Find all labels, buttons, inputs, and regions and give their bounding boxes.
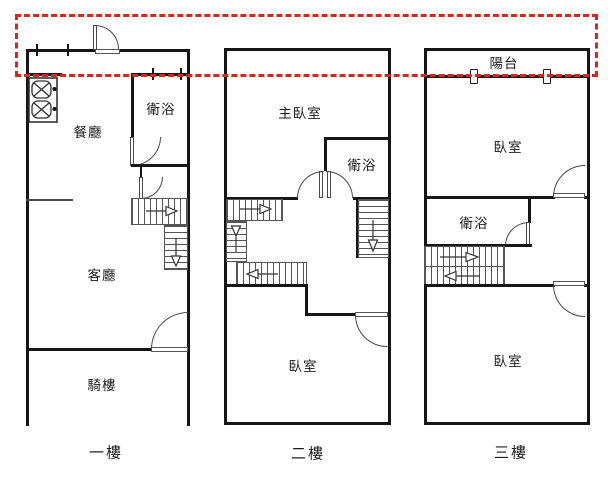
wall <box>424 196 555 199</box>
wall <box>424 422 590 425</box>
stairs-direction-arrow <box>229 224 243 254</box>
stairs-direction-arrow <box>442 269 486 283</box>
stairs-direction-arrow <box>238 202 274 216</box>
wall <box>587 48 590 425</box>
door-arc <box>553 285 585 317</box>
wall <box>140 166 142 177</box>
wall <box>324 137 327 171</box>
room-label-front-bedroom: 臥室 <box>494 136 523 156</box>
stairs-direction-arrow <box>366 218 380 254</box>
door-arc <box>326 171 353 198</box>
wall <box>305 284 308 316</box>
door-arc <box>151 312 188 349</box>
room-label-bath: 衛浴 <box>460 212 489 232</box>
stairs-direction-arrow <box>144 204 180 218</box>
room-label-master-bedroom: 主臥室 <box>278 102 322 122</box>
door-arc <box>505 222 529 246</box>
floor-plan-canvas: 餐廳 衛浴 客廳 騎樓 一樓 <box>0 0 616 480</box>
room-label-rear-bedroom: 臥室 <box>494 350 523 370</box>
stairs-direction-arrow <box>169 236 183 268</box>
wall <box>131 73 134 137</box>
door-arc <box>553 165 585 197</box>
stairs-direction-arrow <box>244 267 280 281</box>
door-arc <box>141 177 163 199</box>
partition-line <box>26 199 73 201</box>
wall <box>305 313 356 316</box>
room-label-arcade: 騎樓 <box>88 374 117 394</box>
wall <box>26 348 152 351</box>
floor-3-caption: 三樓 <box>494 442 528 463</box>
floor-1-caption: 一樓 <box>89 442 123 463</box>
wall <box>224 422 391 425</box>
wall <box>224 284 308 287</box>
room-label-bath: 衛浴 <box>147 98 176 118</box>
wall <box>424 284 555 287</box>
wall <box>324 137 390 140</box>
room-label-bath: 衛浴 <box>348 154 377 174</box>
floor-2-caption: 二樓 <box>291 443 325 464</box>
door-arc <box>132 137 161 166</box>
wall <box>528 196 531 223</box>
room-label-living: 客廳 <box>88 264 117 284</box>
stove-icon <box>28 77 59 123</box>
room-label-bedroom: 臥室 <box>289 355 318 375</box>
wall <box>424 48 427 425</box>
door-arc <box>297 171 324 198</box>
room-label-dining: 餐廳 <box>74 121 103 141</box>
highlight-dashed-box <box>15 14 598 77</box>
door-arc <box>355 315 387 347</box>
stairs-direction-arrow <box>438 250 482 264</box>
